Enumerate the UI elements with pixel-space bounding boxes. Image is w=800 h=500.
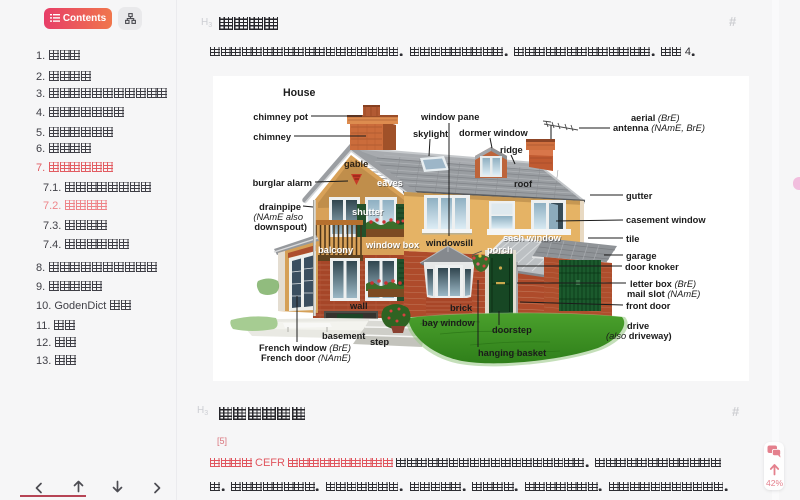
svg-text:mail slot (NAmE): mail slot (NAmE) (627, 289, 700, 299)
svg-text:drive: drive (627, 321, 649, 331)
svg-text:(also driveway): (also driveway) (606, 331, 672, 341)
svg-text:brick: brick (450, 303, 473, 313)
svg-text:windowsill: windowsill (425, 238, 473, 248)
svg-text:balcony: balcony (318, 245, 354, 255)
svg-text:front door: front door (626, 301, 671, 311)
svg-text:window pane: window pane (420, 112, 479, 122)
svg-text:downspout): downspout) (254, 222, 307, 232)
svg-text:antenna (NAmE, BrE): antenna (NAmE, BrE) (613, 123, 705, 133)
svg-text:chimney: chimney (253, 132, 292, 142)
svg-text:step: step (370, 337, 389, 347)
svg-text:door knoker: door knoker (625, 262, 679, 272)
svg-text:aerial (BrE): aerial (BrE) (631, 113, 680, 123)
svg-text:window box: window box (365, 240, 420, 250)
svg-text:basement: basement (322, 331, 365, 341)
svg-text:gable: gable (344, 159, 368, 169)
svg-text:(NAmE also: (NAmE also (253, 212, 303, 222)
svg-text:dormer window: dormer window (459, 128, 528, 138)
svg-text:hanging basket: hanging basket (478, 348, 546, 358)
svg-text:casement window: casement window (626, 215, 706, 225)
svg-text:tile: tile (626, 234, 639, 244)
svg-text:wall: wall (349, 301, 368, 311)
svg-text:House: House (283, 87, 315, 99)
svg-text:skylight: skylight (413, 129, 448, 139)
svg-text:letter box (BrE): letter box (BrE) (630, 279, 696, 289)
svg-text:chimney pot: chimney pot (253, 112, 308, 122)
svg-text:sash window: sash window (503, 233, 562, 243)
svg-text:French window (BrE): French window (BrE) (259, 343, 351, 353)
svg-text:eaves: eaves (377, 178, 403, 188)
svg-text:doorstep: doorstep (492, 325, 532, 335)
svg-text:burglar alarm: burglar alarm (253, 178, 312, 188)
svg-text:porch: porch (487, 245, 513, 255)
svg-text:bay window: bay window (422, 318, 475, 328)
svg-text:shutter: shutter (352, 207, 384, 217)
svg-text:drainpipe: drainpipe (259, 202, 301, 212)
svg-text:roof: roof (514, 179, 533, 189)
svg-text:French door (NAmE): French door (NAmE) (261, 353, 351, 363)
svg-text:garage: garage (626, 251, 657, 261)
svg-text:ridge: ridge (500, 145, 523, 155)
svg-text:gutter: gutter (626, 191, 653, 201)
